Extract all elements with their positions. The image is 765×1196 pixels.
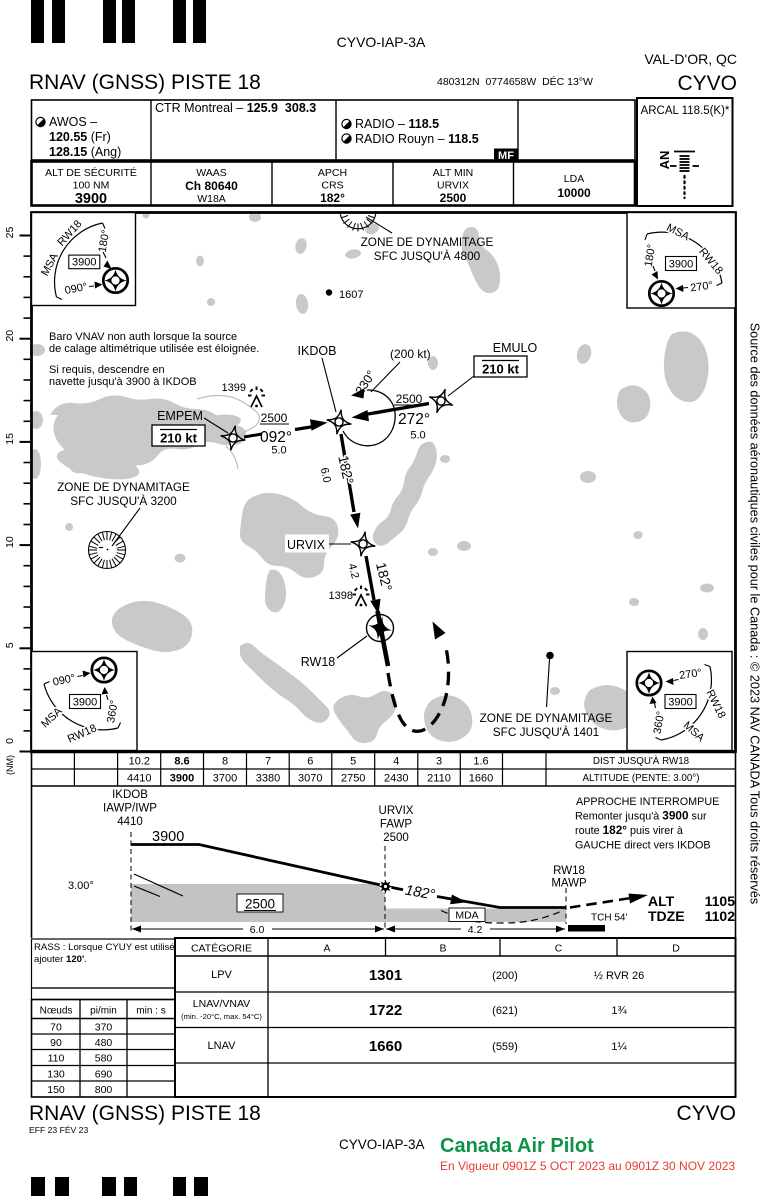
svg-text:SFC JUSQU'À 3200: SFC JUSQU'À 3200: [70, 494, 177, 508]
svg-text:150: 150: [47, 1084, 65, 1096]
svg-text:de calage altimétrique utilisé: de calage altimétrique utilisée est éloi…: [49, 343, 259, 355]
svg-text:(200 kt): (200 kt): [390, 347, 431, 361]
svg-text:ARCAL 118.5(K)*: ARCAL 118.5(K)*: [641, 105, 730, 117]
svg-text:CATÉGORIE: CATÉGORIE: [191, 942, 252, 955]
svg-text:1301: 1301: [369, 967, 402, 984]
svg-text:pi/min: pi/min: [90, 1006, 117, 1017]
svg-text:1.6: 1.6: [473, 756, 488, 768]
svg-text:210 kt: 210 kt: [482, 362, 520, 377]
svg-text:100 NM: 100 NM: [73, 180, 110, 192]
svg-text:(200): (200): [492, 970, 518, 982]
svg-text:VAL-D'OR, QC: VAL-D'OR, QC: [644, 51, 737, 67]
svg-text:10000: 10000: [557, 186, 591, 200]
svg-text:ZONE DE DYNAMITAGE: ZONE DE DYNAMITAGE: [361, 235, 494, 249]
svg-text:128.15 (Ang): 128.15 (Ang): [49, 145, 121, 159]
svg-text:AN: AN: [657, 151, 672, 170]
svg-text:Source des données aéronautiqu: Source des données aéronautiques civiles…: [748, 323, 762, 905]
svg-text:3900: 3900: [669, 258, 693, 270]
svg-text:W18A: W18A: [197, 193, 226, 205]
svg-text:10.2: 10.2: [129, 756, 150, 768]
svg-text:URVIX: URVIX: [437, 180, 469, 192]
svg-text:10: 10: [4, 536, 16, 548]
svg-text:7: 7: [265, 756, 271, 768]
svg-text:2110: 2110: [427, 773, 451, 785]
svg-text:(min. -20°C, max. 54°C): (min. -20°C, max. 54°C): [181, 1012, 262, 1021]
svg-text:182°: 182°: [320, 191, 345, 205]
svg-text:IAWP/IWP: IAWP/IWP: [103, 803, 157, 815]
svg-text:1399: 1399: [222, 382, 246, 394]
svg-text:2500: 2500: [261, 411, 288, 425]
svg-text:5: 5: [350, 756, 356, 768]
svg-text:navette jusqu'à 3900 à IKDOB: navette jusqu'à 3900 à IKDOB: [49, 376, 197, 388]
svg-text:800: 800: [95, 1084, 113, 1096]
svg-text:4.2: 4.2: [468, 924, 483, 936]
svg-text:3700: 3700: [213, 773, 237, 785]
svg-text:3900: 3900: [72, 257, 96, 269]
svg-text:A: A: [323, 943, 330, 955]
svg-text:LDA: LDA: [564, 173, 584, 185]
svg-text:TCH 54': TCH 54': [591, 913, 627, 924]
svg-text:4410: 4410: [117, 816, 143, 828]
svg-text:3900: 3900: [170, 773, 194, 785]
svg-text:90: 90: [50, 1037, 62, 1049]
svg-text:RW18: RW18: [301, 655, 336, 669]
svg-text:RASS : Lorsque CYUY est utilis: RASS : Lorsque CYUY est utilisé: [34, 942, 175, 953]
svg-text:route 182° puis virer à: route 182° puis virer à: [575, 823, 683, 837]
svg-text:3380: 3380: [256, 773, 280, 785]
svg-text:CRS: CRS: [321, 180, 343, 192]
svg-text:AWOS –: AWOS –: [49, 115, 97, 129]
svg-text:Remonter jusqu'à 3900 sur: Remonter jusqu'à 3900 sur: [575, 809, 707, 823]
svg-text:CYVO: CYVO: [676, 1102, 736, 1125]
svg-text:20: 20: [4, 330, 16, 342]
svg-text:3070: 3070: [298, 773, 322, 785]
svg-text:LPV: LPV: [211, 969, 232, 981]
svg-text:MDA: MDA: [455, 910, 478, 922]
svg-text:CYVO-IAP-3A: CYVO-IAP-3A: [339, 1137, 425, 1152]
svg-text:272°: 272°: [398, 411, 430, 428]
svg-text:MF: MF: [498, 150, 514, 162]
svg-text:3900: 3900: [73, 696, 97, 708]
svg-text:370: 370: [95, 1022, 113, 1034]
svg-text:5: 5: [4, 642, 16, 648]
svg-text:4.2: 4.2: [346, 562, 361, 580]
svg-text:2750: 2750: [341, 773, 365, 785]
svg-text:092°: 092°: [260, 429, 292, 446]
svg-text:70: 70: [50, 1022, 62, 1034]
svg-text:1660: 1660: [369, 1038, 402, 1055]
svg-text:RADIO – 118.5: RADIO – 118.5: [355, 117, 439, 131]
svg-text:1¾: 1¾: [611, 1005, 627, 1017]
svg-text:5.0: 5.0: [271, 445, 286, 457]
svg-text:RNAV (GNSS) PISTE 18: RNAV (GNSS) PISTE 18: [29, 1102, 261, 1125]
svg-text:480: 480: [95, 1037, 113, 1049]
svg-text:182°: 182°: [335, 454, 357, 486]
svg-text:182°: 182°: [404, 883, 437, 904]
svg-text:ALT DE SÉCURITÉ: ALT DE SÉCURITÉ: [45, 166, 137, 179]
svg-text:1105: 1105: [705, 893, 736, 909]
svg-text:110: 110: [48, 1053, 65, 1065]
svg-text:8.6: 8.6: [174, 756, 189, 768]
svg-text:1¼: 1¼: [611, 1041, 627, 1053]
svg-text:RADIO Rouyn – 118.5: RADIO Rouyn – 118.5: [355, 132, 479, 146]
svg-text:URVIX: URVIX: [287, 538, 326, 552]
svg-text:(559): (559): [492, 1041, 518, 1053]
svg-text:LNAV/VNAV: LNAV/VNAV: [193, 998, 250, 1010]
svg-text:C: C: [555, 943, 563, 955]
svg-text:4410: 4410: [127, 773, 151, 785]
svg-text:120.55 (Fr): 120.55 (Fr): [49, 130, 111, 144]
svg-text:ALTITUDE (PENTE: 3.00°): ALTITUDE (PENTE: 3.00°): [583, 773, 700, 784]
svg-text:IKDOB: IKDOB: [112, 789, 148, 801]
svg-text:0: 0: [4, 738, 16, 744]
svg-text:EMPEM: EMPEM: [157, 409, 203, 423]
svg-text:ALT MIN: ALT MIN: [433, 167, 473, 179]
svg-text:SFC JUSQU'À 1401: SFC JUSQU'À 1401: [493, 725, 600, 739]
svg-text:URVIX: URVIX: [379, 805, 414, 817]
svg-text:min : s: min : s: [136, 1006, 165, 1017]
svg-text:CYVO: CYVO: [677, 72, 737, 95]
svg-text:½ RVR 26: ½ RVR 26: [594, 970, 645, 982]
svg-text:6.0: 6.0: [318, 466, 333, 483]
svg-text:2500: 2500: [396, 392, 423, 406]
svg-text:RW18: RW18: [553, 865, 585, 877]
svg-text:15: 15: [4, 433, 16, 445]
svg-text:6: 6: [307, 756, 313, 768]
svg-text:B: B: [439, 943, 446, 955]
svg-text:LNAV: LNAV: [208, 1040, 237, 1052]
svg-text:ajouter 120'.: ajouter 120'.: [34, 954, 87, 965]
svg-text:DIST JUSQU'À RW18: DIST JUSQU'À RW18: [593, 756, 690, 767]
svg-text:ZONE DE DYNAMITAGE: ZONE DE DYNAMITAGE: [480, 711, 613, 725]
svg-text:4: 4: [393, 756, 399, 768]
svg-text:MAWP: MAWP: [551, 878, 587, 890]
svg-text:Nœuds: Nœuds: [40, 1006, 73, 1017]
svg-text:182°: 182°: [373, 561, 396, 593]
svg-text:APCH: APCH: [318, 167, 347, 179]
svg-text:Baro VNAV non auth lorsque la: Baro VNAV non auth lorsque la source: [49, 331, 237, 343]
svg-text:GAUCHE direct vers IKDOB: GAUCHE direct vers IKDOB: [575, 840, 711, 852]
svg-text:(621): (621): [492, 1005, 518, 1017]
svg-text:580: 580: [95, 1053, 113, 1065]
svg-text:FAWP: FAWP: [380, 819, 412, 831]
svg-text:6.0: 6.0: [250, 924, 265, 936]
svg-text:2430: 2430: [384, 773, 408, 785]
svg-text:1398: 1398: [329, 590, 353, 602]
svg-text:2500: 2500: [440, 191, 467, 205]
svg-text:1660: 1660: [469, 773, 493, 785]
svg-text:3900: 3900: [75, 191, 107, 207]
svg-text:Si requis, descendre en: Si requis, descendre en: [49, 364, 165, 376]
svg-text:2500: 2500: [383, 832, 409, 844]
svg-text:En Vigueur 0901Z 5 OCT 2023 au: En Vigueur 0901Z 5 OCT 2023 au 0901Z 30 …: [440, 1159, 735, 1173]
svg-text:ZONE DE DYNAMITAGE: ZONE DE DYNAMITAGE: [57, 480, 190, 494]
svg-text:25: 25: [4, 227, 16, 239]
svg-text:130: 130: [47, 1069, 65, 1081]
svg-text:690: 690: [95, 1069, 113, 1081]
svg-text:TDZE: TDZE: [648, 908, 685, 924]
svg-text:Ch 80640: Ch 80640: [185, 179, 238, 193]
svg-text:IKDOB: IKDOB: [298, 344, 337, 358]
svg-text:3: 3: [436, 756, 442, 768]
svg-text:210 kt: 210 kt: [160, 431, 198, 446]
svg-text:1607: 1607: [339, 289, 363, 301]
svg-text:SFC JUSQU'À 4800: SFC JUSQU'À 4800: [374, 249, 481, 263]
svg-text:CYVO-IAP-3A: CYVO-IAP-3A: [337, 34, 426, 50]
svg-text:3.00°: 3.00°: [68, 880, 94, 892]
svg-text:1722: 1722: [369, 1002, 402, 1019]
svg-text:2500: 2500: [245, 897, 275, 912]
svg-text:RNAV (GNSS) PISTE 18: RNAV (GNSS) PISTE 18: [29, 71, 261, 94]
svg-text:CTR Montreal – 125.9 308.3: CTR Montreal – 125.9 308.3: [155, 101, 316, 115]
svg-text:WAAS: WAAS: [196, 167, 227, 179]
svg-text:Canada Air Pilot: Canada Air Pilot: [440, 1135, 594, 1157]
svg-text:3900: 3900: [152, 829, 184, 845]
svg-text:APPROCHE INTERROMPUE: APPROCHE INTERROMPUE: [576, 796, 719, 808]
svg-text:D: D: [672, 943, 680, 955]
svg-text:EMULO: EMULO: [493, 341, 538, 355]
svg-text:480312N 0774658W DÉC 13°W: 480312N 0774658W DÉC 13°W: [437, 75, 593, 88]
svg-text:5.0: 5.0: [410, 430, 425, 442]
svg-text:1102: 1102: [705, 908, 736, 924]
svg-text:8: 8: [222, 756, 228, 768]
svg-text:EFF 23 FÉV 23: EFF 23 FÉV 23: [29, 1125, 88, 1135]
svg-text:(NM): (NM): [5, 755, 15, 775]
svg-text:3900: 3900: [668, 696, 692, 708]
svg-text:ALT: ALT: [648, 893, 675, 909]
